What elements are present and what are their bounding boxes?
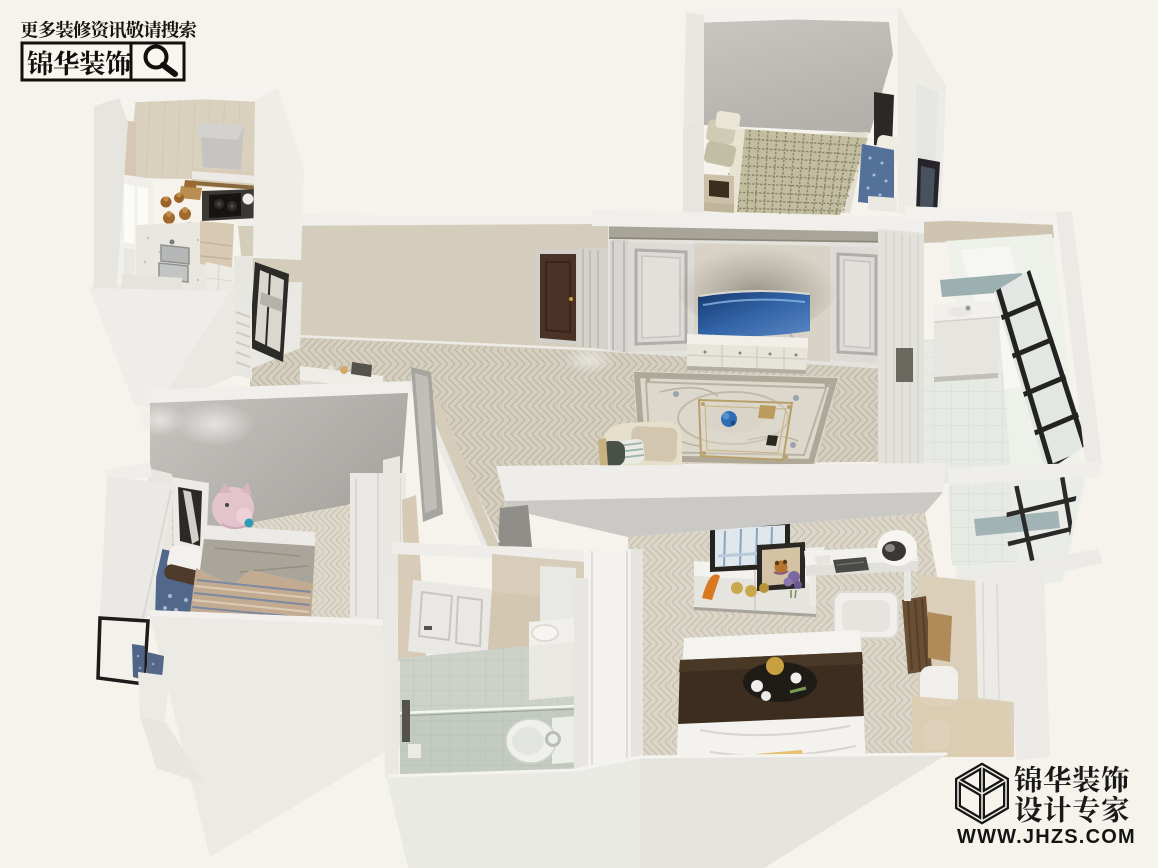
svg-text:WWW.JHZS.COM: WWW.JHZS.COM	[957, 826, 1136, 848]
